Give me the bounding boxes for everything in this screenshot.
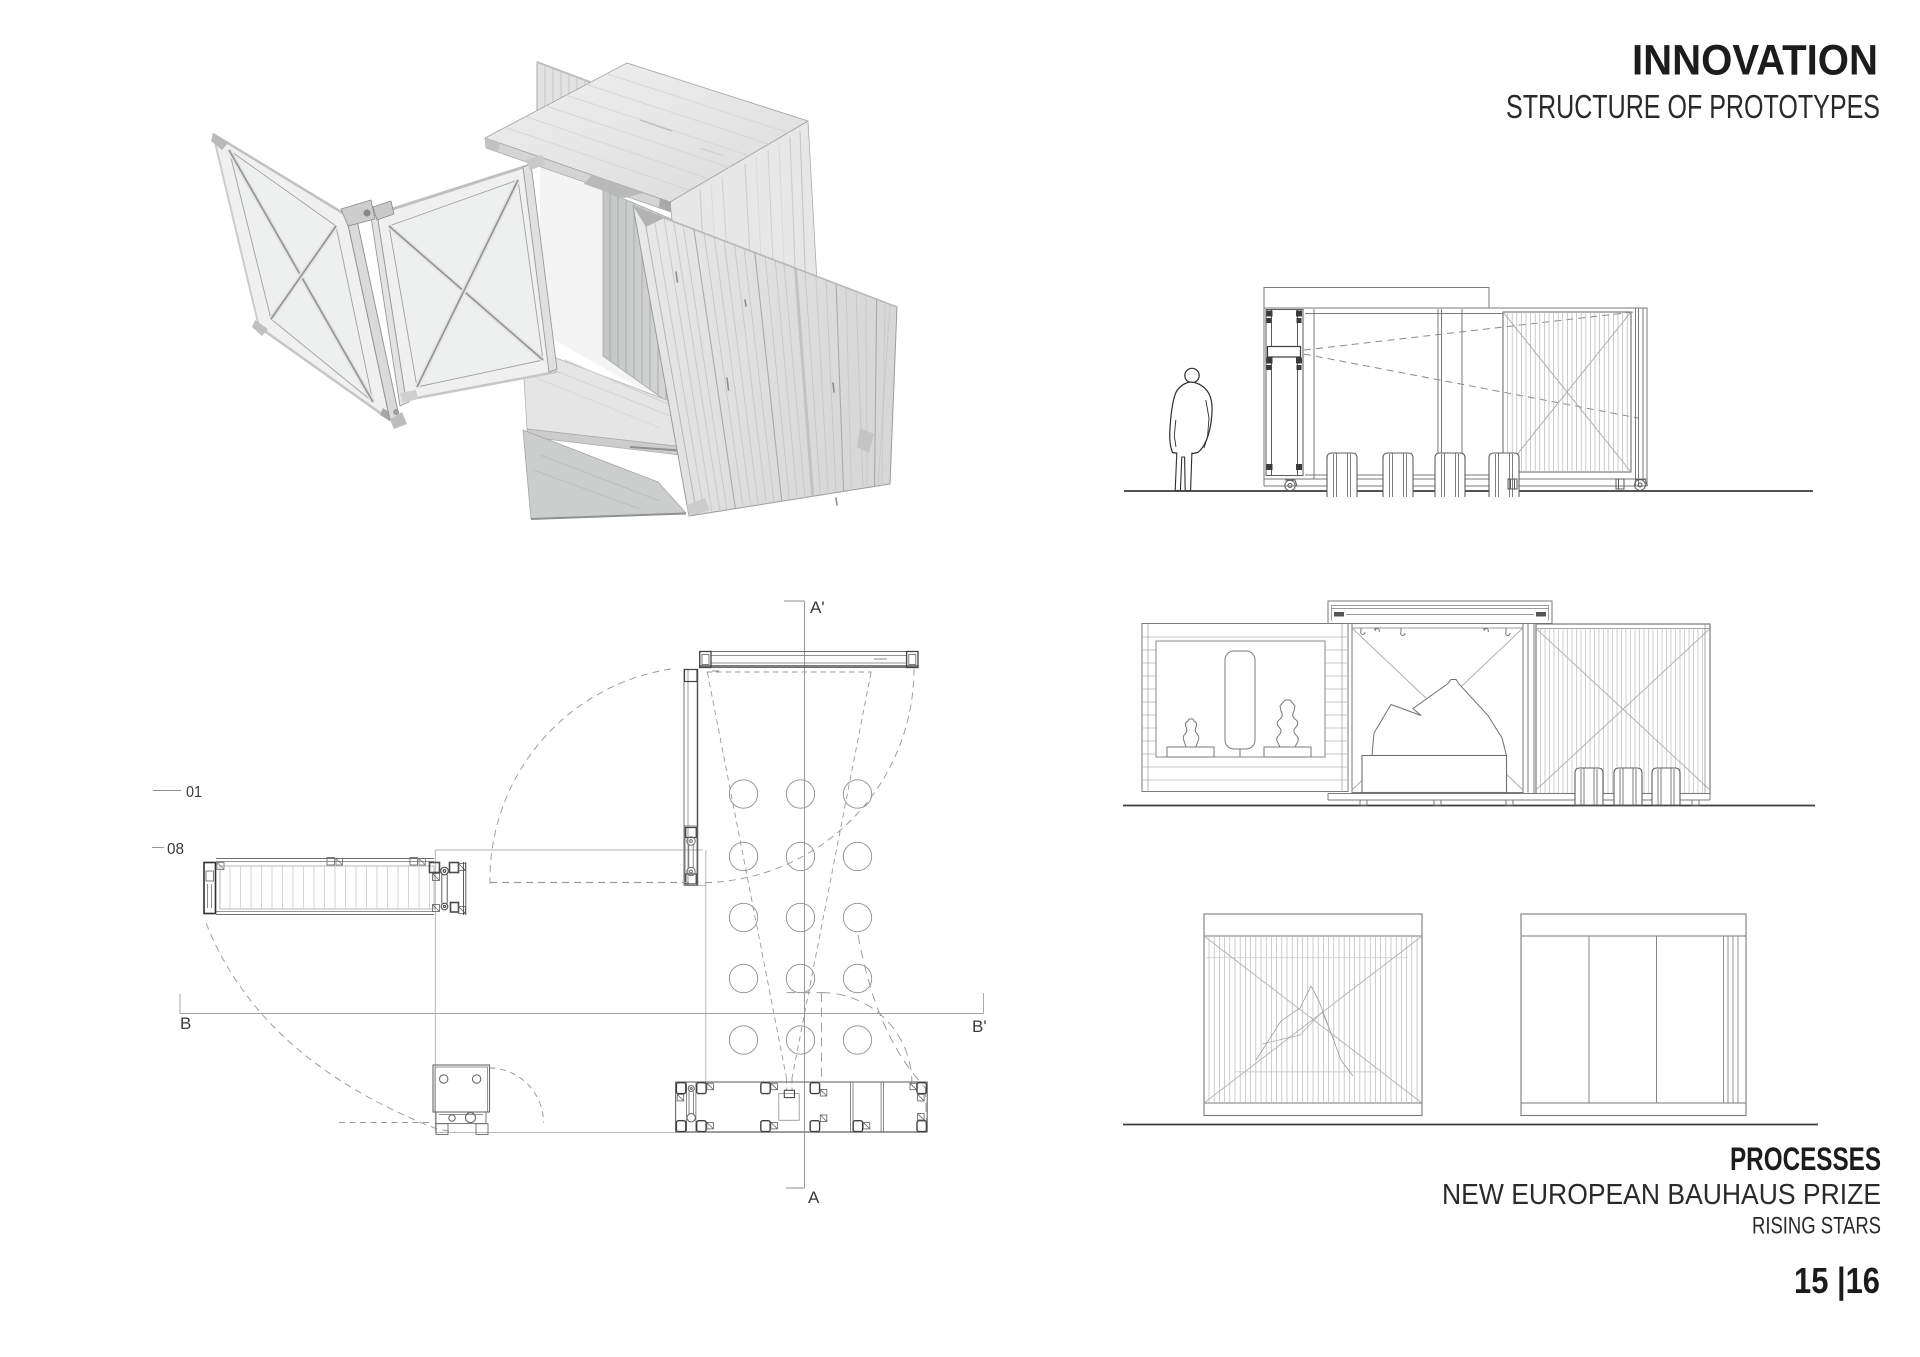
svg-text:B': B'	[972, 1017, 987, 1036]
svg-text:01: 01	[186, 784, 202, 801]
svg-text:A': A'	[810, 598, 825, 617]
svg-text:RISING STARS: RISING STARS	[1752, 1213, 1881, 1240]
svg-text:A: A	[808, 1188, 820, 1207]
svg-text:PROCESSES: PROCESSES	[1730, 1141, 1881, 1177]
svg-text:08: 08	[167, 841, 184, 858]
svg-text:15 |16: 15 |16	[1794, 1260, 1880, 1302]
svg-text:STRUCTURE OF PROTOTYPES: STRUCTURE OF PROTOTYPES	[1506, 88, 1880, 125]
svg-text:NEW EUROPEAN BAUHAUS PRIZE: NEW EUROPEAN BAUHAUS PRIZE	[1442, 1179, 1881, 1211]
svg-text:INNOVATION: INNOVATION	[1632, 37, 1878, 85]
svg-text:B: B	[180, 1014, 191, 1033]
